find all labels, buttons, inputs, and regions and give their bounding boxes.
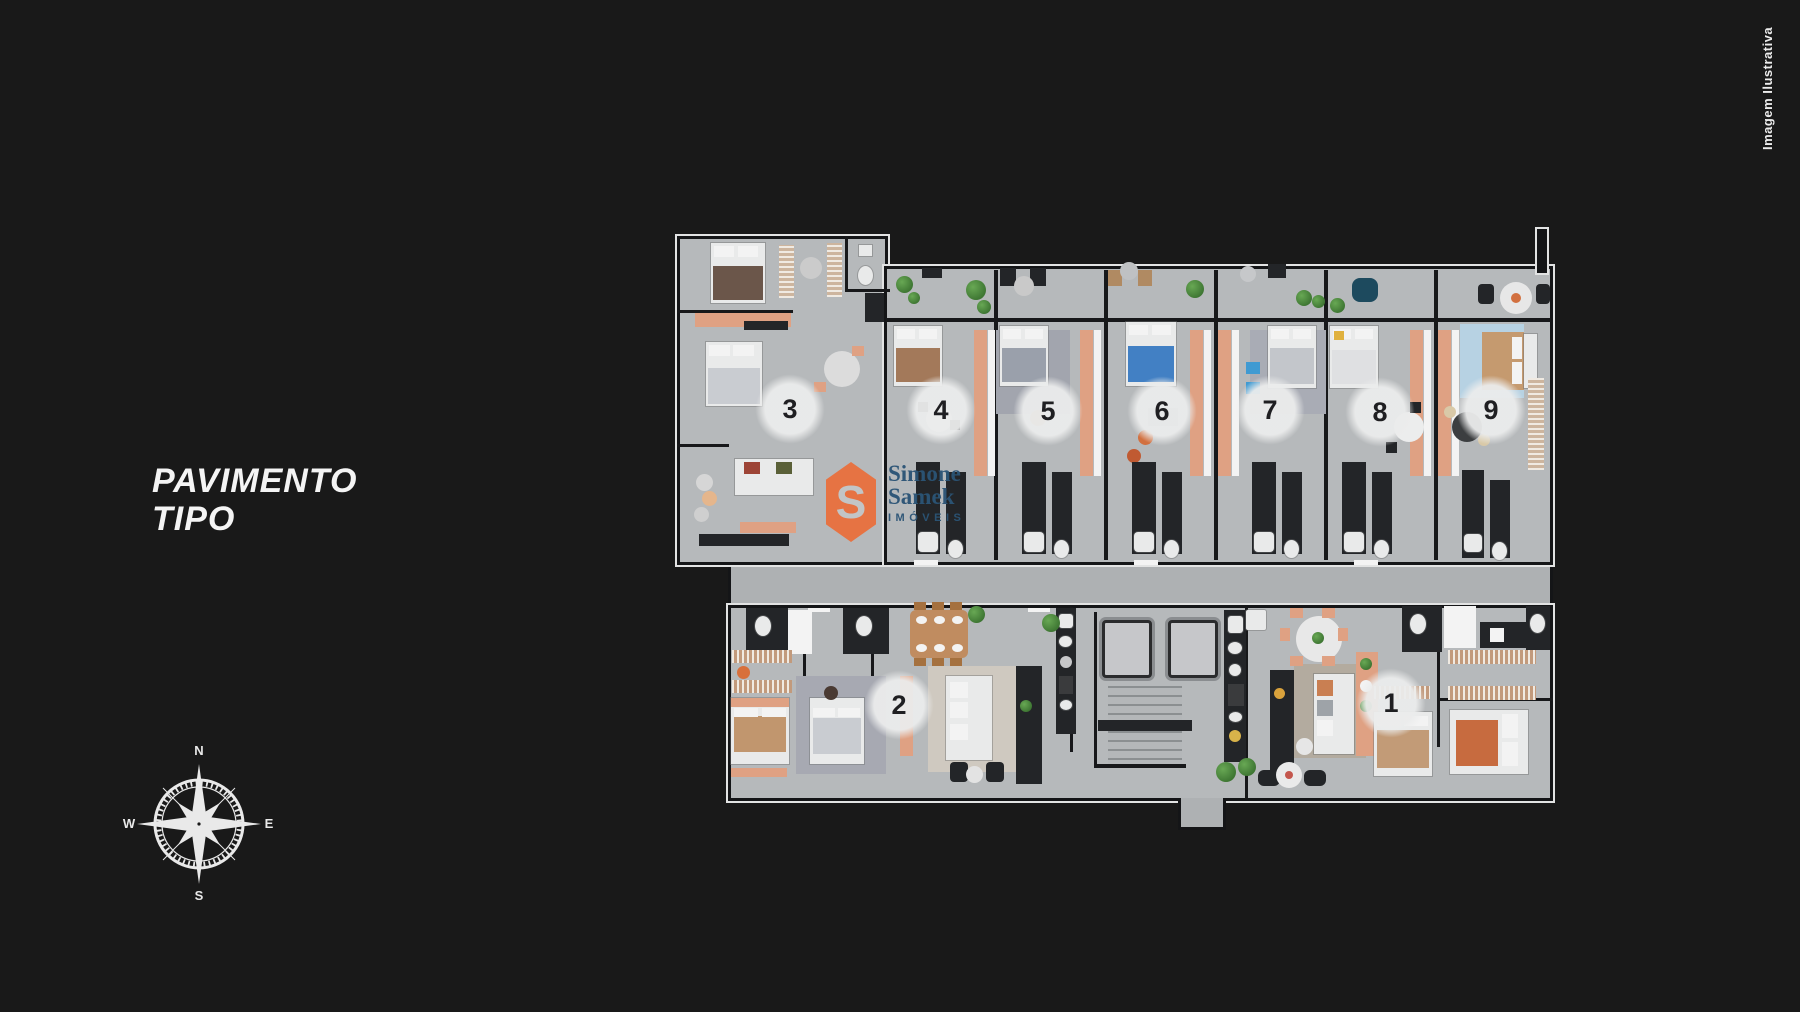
furniture-trim: [1094, 330, 1101, 476]
furniture: [708, 368, 760, 404]
furniture-dark: [865, 293, 884, 322]
unit-number-badge: 3: [754, 373, 826, 445]
closet-rack: [732, 680, 792, 693]
furniture-dark: [744, 321, 788, 330]
furniture-dark: [1098, 720, 1192, 731]
furniture-trim: [914, 560, 938, 565]
furniture-trim: [714, 246, 734, 257]
furniture: [1127, 449, 1141, 463]
furniture: [824, 351, 860, 387]
furniture: [1229, 730, 1241, 742]
furniture-trim: [762, 708, 786, 717]
page-title-line1: PAVIMENTO: [152, 462, 357, 500]
furniture: [744, 462, 760, 474]
furniture-trim: [1028, 608, 1050, 612]
compass-south-label: S: [195, 888, 204, 902]
furniture-trim: [788, 610, 812, 654]
furniture-trim: [934, 616, 945, 624]
furniture: [966, 766, 983, 783]
furniture-trim: [919, 329, 937, 339]
furniture-trim: [916, 616, 927, 624]
furniture-white: [856, 616, 872, 636]
kitchen-counter: [1290, 608, 1303, 618]
entry-walkway-block: [1178, 798, 1226, 830]
kitchen-counter: [1322, 656, 1335, 666]
plant-icon: [977, 300, 991, 314]
closet-rack: [827, 243, 842, 297]
furniture-dark: [699, 534, 789, 546]
furniture: [1240, 266, 1256, 282]
furniture: [800, 257, 822, 279]
unit-number-badge: 5: [1012, 375, 1084, 447]
disclaimer-watermark: Imagem Ilustrativa: [1760, 20, 1775, 150]
plant-icon: [1042, 614, 1060, 632]
furniture-trim: [1424, 330, 1431, 476]
elevator: [1168, 620, 1218, 678]
furniture: [1352, 278, 1378, 302]
plant-icon: [908, 292, 920, 304]
unit-number-badge: 6: [1126, 375, 1198, 447]
furniture-trim: [1271, 329, 1289, 339]
furniture-trim: [838, 708, 860, 717]
compass-west-label: W: [123, 816, 136, 831]
furniture-white: [1246, 610, 1266, 630]
closet-rack: [1448, 686, 1536, 700]
furniture: [1246, 362, 1260, 374]
furniture: [1296, 738, 1313, 755]
furniture-trim: [734, 708, 758, 717]
furniture-white: [858, 266, 873, 285]
compass-rose-icon: N E S W: [119, 742, 279, 902]
furniture: [1317, 700, 1333, 716]
furniture: [702, 491, 717, 506]
unit-number-badge: 1: [1355, 667, 1427, 739]
furniture-white: [1229, 664, 1241, 676]
furniture-white: [859, 245, 872, 256]
logo-name-line2: Samek: [888, 485, 965, 508]
kitchen-counter: [1322, 608, 1335, 618]
logo: S Simone Samek IMÓVEIS: [826, 462, 965, 542]
plant-icon: [1360, 658, 1372, 670]
furniture: [824, 686, 838, 700]
furniture: [776, 462, 792, 474]
furniture-white: [1530, 614, 1545, 633]
furniture-trim: [1355, 329, 1373, 339]
plant-icon: [1330, 298, 1345, 313]
furniture-white: [1344, 532, 1364, 552]
furniture-trim: [1512, 337, 1522, 359]
furniture-trim: [733, 345, 754, 356]
furniture: [932, 602, 944, 610]
furniture-white: [1059, 636, 1072, 647]
furniture-trim: [950, 682, 968, 698]
furniture-dark: [922, 268, 942, 278]
furniture: [696, 474, 713, 491]
furniture-dark: [1480, 622, 1528, 648]
furniture-trim: [952, 616, 963, 624]
compass-north-label: N: [194, 743, 203, 758]
furniture-white: [1254, 532, 1274, 552]
furniture-dark: [986, 762, 1004, 782]
wall: [845, 236, 848, 292]
furniture-white: [1164, 540, 1179, 558]
furniture-dark: [1304, 770, 1326, 786]
wall: [677, 444, 729, 447]
furniture-dark: [1478, 284, 1494, 304]
kitchen-counter: [740, 522, 796, 533]
furniture-white: [1284, 540, 1299, 558]
furniture: [713, 266, 763, 300]
plant-icon: [1312, 632, 1324, 644]
compass-east-label: E: [265, 816, 274, 831]
furniture-trim: [934, 644, 945, 652]
elevator: [1102, 620, 1152, 678]
wall: [1324, 270, 1328, 560]
furniture-trim: [1490, 628, 1504, 642]
furniture: [1285, 771, 1293, 779]
furniture: [1274, 688, 1285, 699]
furniture: [813, 718, 861, 754]
furniture-white: [1060, 700, 1072, 710]
furniture: [1317, 680, 1333, 696]
closet-rack: [1448, 650, 1536, 664]
furniture-trim: [1444, 606, 1476, 648]
furniture-trim: [950, 724, 968, 740]
furniture-trim: [813, 708, 835, 717]
plant-icon: [1186, 280, 1204, 298]
furniture: [1511, 293, 1521, 303]
unit-number-badge: 7: [1234, 374, 1306, 446]
unit-number-badge: 2: [863, 669, 935, 741]
plant-icon: [1296, 290, 1312, 306]
furniture-white: [1410, 614, 1426, 634]
furniture-trim: [952, 644, 963, 652]
furniture: [694, 507, 709, 522]
furniture-white: [755, 616, 771, 636]
furniture: [1059, 676, 1073, 694]
furniture-trim: [1003, 329, 1021, 339]
furniture-trim: [988, 330, 995, 476]
closet-rack: [779, 245, 794, 298]
furniture: [950, 602, 962, 610]
furniture-white: [1464, 534, 1482, 552]
furniture: [914, 602, 926, 610]
furniture-trim: [1502, 714, 1518, 738]
furniture-trim: [1502, 742, 1518, 766]
furniture-trim: [950, 702, 968, 718]
corridor-block: [728, 562, 1553, 610]
furniture-trim: [916, 644, 927, 652]
furniture-white: [1229, 712, 1242, 722]
furniture: [1456, 720, 1498, 766]
furniture-dark: [1268, 264, 1286, 278]
furniture-dark: [1016, 666, 1042, 784]
wall-stub: [1537, 229, 1547, 273]
kitchen-counter: [1290, 656, 1303, 666]
plant-icon: [1216, 762, 1236, 782]
kitchen-counter: [1438, 330, 1451, 476]
furniture-trim: [1317, 720, 1333, 736]
unit-number-badge: 8: [1344, 376, 1416, 448]
furniture-trim: [1129, 325, 1148, 335]
logo-tagline: IMÓVEIS: [888, 512, 965, 524]
kitchen-counter: [1280, 628, 1290, 641]
furniture-white: [1374, 540, 1389, 558]
closet-rack: [1528, 378, 1544, 470]
kitchen-counter: [852, 346, 864, 356]
furniture: [1334, 331, 1344, 340]
furniture-white: [1228, 616, 1243, 633]
kitchen-counter: [731, 698, 789, 707]
furniture-dark: [1536, 284, 1550, 304]
furniture-trim: [1152, 325, 1171, 335]
page-root: { "page": { "background_color": "#191919…: [0, 0, 1800, 1012]
plant-icon: [966, 280, 986, 300]
plant-icon: [1312, 295, 1325, 308]
furniture-trim: [1293, 329, 1311, 339]
furniture-white: [1134, 532, 1154, 552]
furniture-white: [1059, 614, 1073, 628]
furniture-trim: [1354, 560, 1378, 565]
unit-number-badge: 9: [1455, 374, 1527, 446]
furniture-trim: [1204, 330, 1211, 476]
furniture-white: [1054, 540, 1069, 558]
wall: [1096, 764, 1186, 768]
furniture: [914, 658, 926, 666]
furniture-white: [1492, 542, 1507, 560]
furniture-white: [1024, 532, 1044, 552]
wall: [886, 318, 1551, 322]
unit-number-badge: 4: [905, 374, 977, 446]
furniture-trim: [897, 329, 915, 339]
furniture: [932, 658, 944, 666]
furniture-trim: [738, 246, 758, 257]
furniture: [1120, 262, 1138, 280]
plant-icon: [968, 606, 985, 623]
wall: [1104, 270, 1108, 560]
plant-icon: [896, 276, 913, 293]
kitchen-counter: [1218, 330, 1231, 476]
furniture: [1138, 270, 1152, 286]
furniture: [1228, 684, 1244, 706]
furniture: [1060, 656, 1072, 668]
furniture-white: [948, 540, 963, 558]
kitchen-counter: [1338, 628, 1348, 641]
logo-name-line1: Simone: [888, 462, 965, 485]
furniture-trim: [1512, 362, 1522, 384]
logo-badge-icon: S: [826, 462, 876, 542]
wall: [1094, 612, 1097, 768]
plant-icon: [1238, 758, 1256, 776]
kitchen-counter: [731, 768, 787, 777]
furniture: [737, 666, 750, 679]
furniture-trim: [709, 345, 730, 356]
page-title-line2: TIPO: [152, 500, 357, 538]
furniture-trim: [1025, 329, 1043, 339]
furniture-trim: [1134, 560, 1158, 565]
furniture: [950, 658, 962, 666]
page-title: PAVIMENTO TIPO: [152, 462, 357, 538]
closet-rack: [732, 650, 792, 663]
furniture-white: [1228, 642, 1242, 654]
furniture: [1014, 276, 1034, 296]
plant-icon: [1020, 700, 1032, 712]
wall: [845, 289, 890, 292]
furniture: [734, 716, 786, 752]
